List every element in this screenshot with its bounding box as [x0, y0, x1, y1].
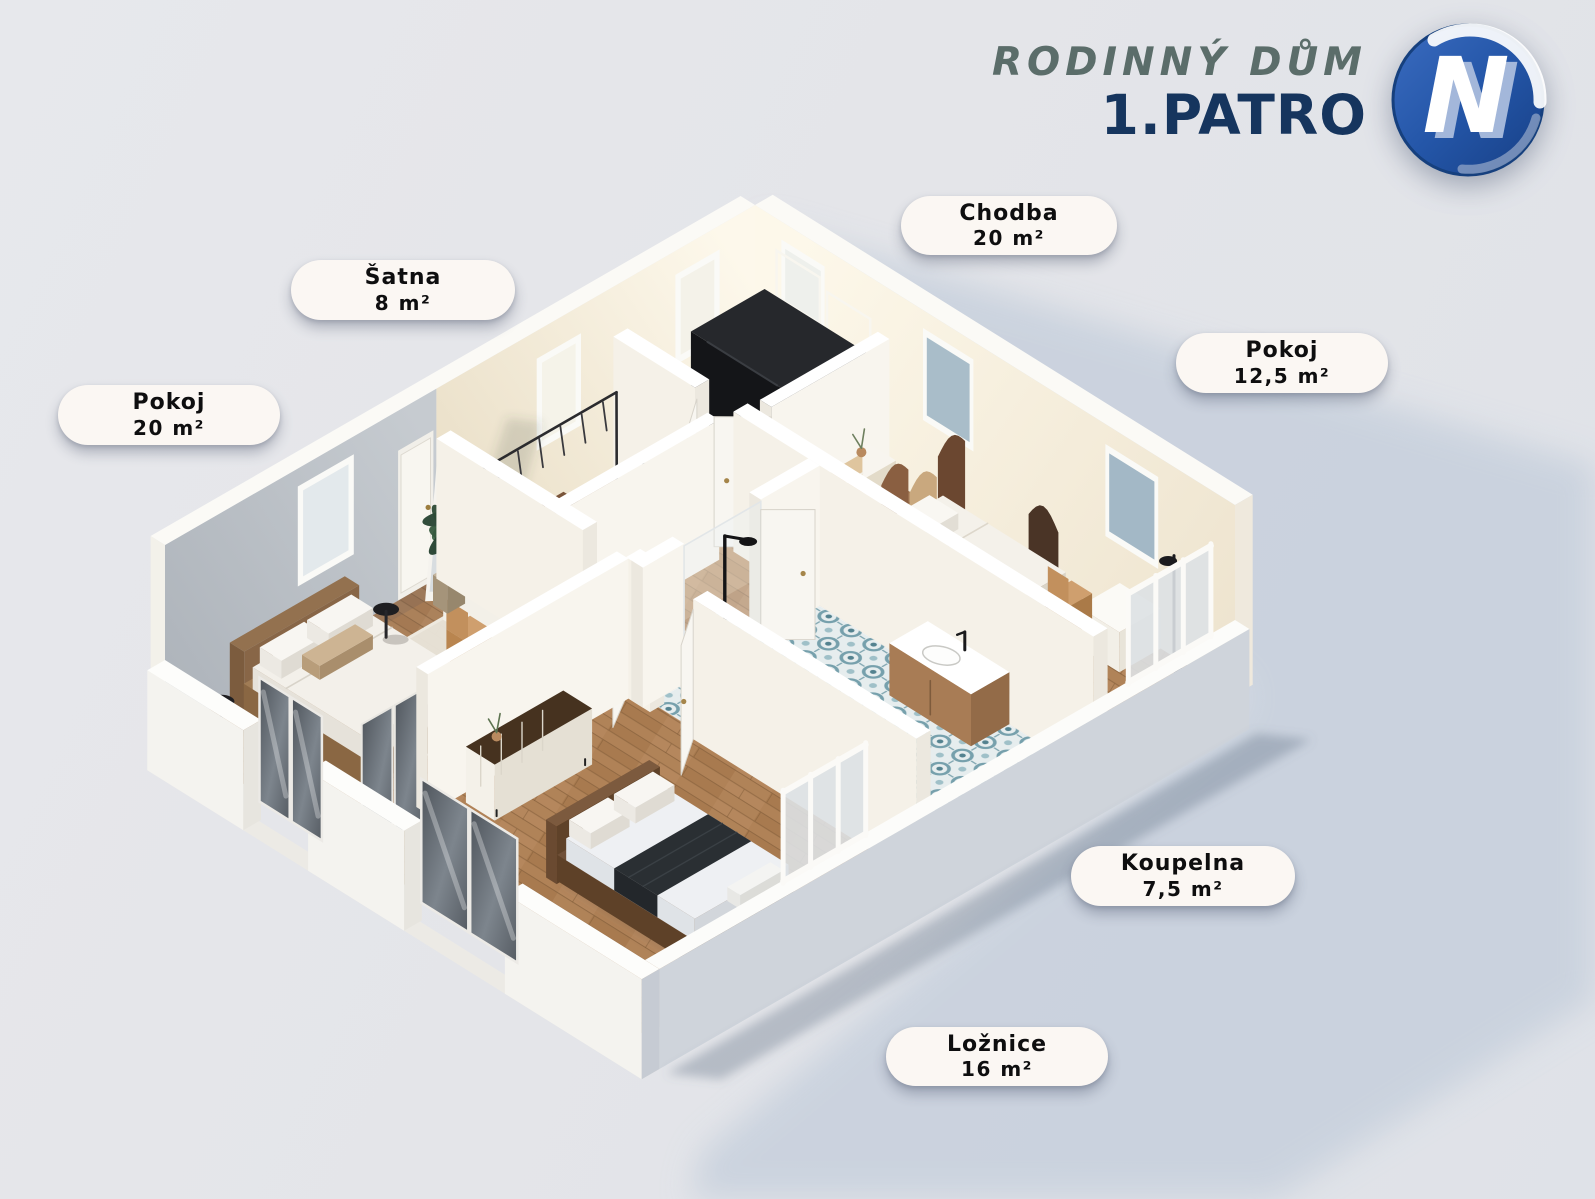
- plan-title: RODINNÝ DŮM: [992, 40, 1367, 85]
- brand-logo: N N: [1388, 20, 1548, 180]
- room-label-koupelna: Koupelna 7,5 m²: [1071, 846, 1295, 906]
- room-name: Šatna: [365, 265, 442, 290]
- room-area: 20 m²: [133, 416, 205, 440]
- room-area: 8 m²: [375, 291, 431, 315]
- logo-letter: N: [1422, 35, 1509, 157]
- plan-floor-subtitle: 1.PATRO: [992, 83, 1367, 147]
- room-name: Ložnice: [947, 1032, 1047, 1057]
- room-area: 20 m²: [973, 226, 1045, 250]
- room-label-pokoj-20: Pokoj 20 m²: [58, 385, 280, 445]
- room-area: 12,5 m²: [1234, 364, 1330, 388]
- room-label-satna: Šatna 8 m²: [291, 260, 515, 320]
- room-name: Koupelna: [1121, 851, 1245, 876]
- room-name: Pokoj: [1246, 338, 1319, 363]
- page-background: Pokoj 20 m² Šatna 8 m² Chodba 20 m² Poko…: [0, 0, 1595, 1199]
- room-label-loznice: Ložnice 16 m²: [886, 1027, 1108, 1086]
- room-area: 16 m²: [961, 1057, 1033, 1081]
- room-name: Pokoj: [133, 390, 206, 415]
- room-label-pokoj-12-5: Pokoj 12,5 m²: [1176, 333, 1388, 393]
- room-name: Chodba: [959, 201, 1058, 226]
- plan-header: RODINNÝ DŮM 1.PATRO: [992, 40, 1367, 147]
- room-area: 7,5 m²: [1143, 877, 1224, 901]
- room-label-chodba: Chodba 20 m²: [901, 196, 1117, 255]
- floorplan-3d-render: [0, 0, 1595, 1199]
